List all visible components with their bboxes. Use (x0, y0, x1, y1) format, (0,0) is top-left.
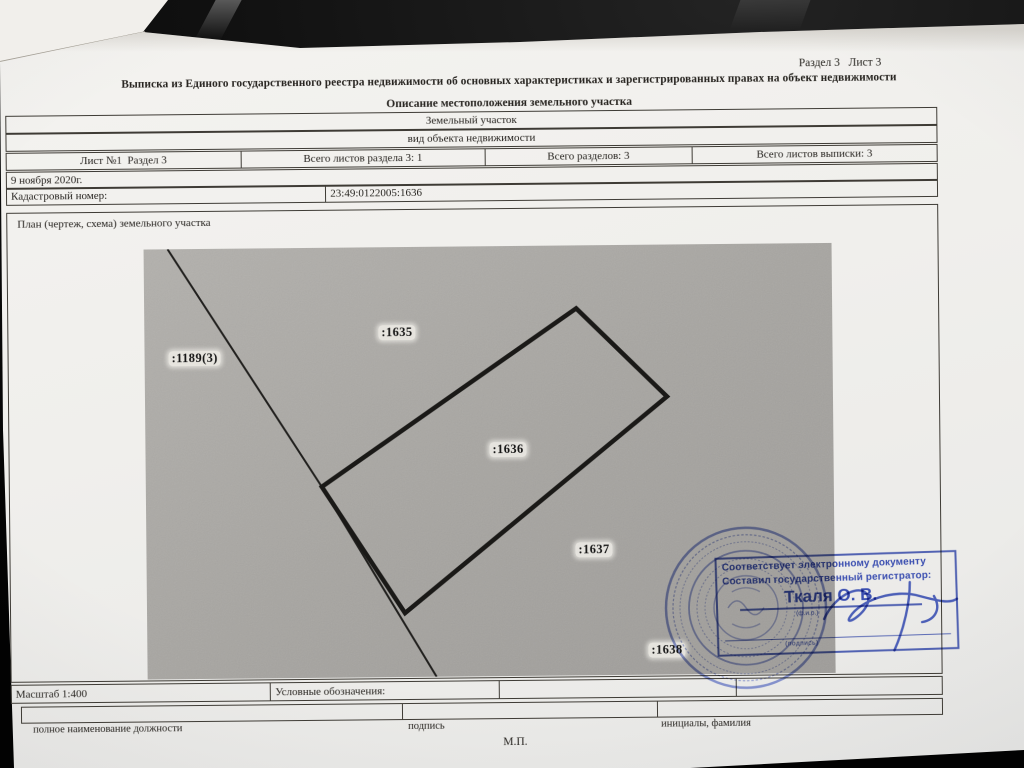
legend-label: Условные обозначения: (271, 681, 500, 700)
scale-label: Масштаб 1:400 (12, 683, 272, 702)
parcel-label: :1189(3) (169, 351, 221, 367)
plan-title: План (чертеж, схема) земельного участка (17, 217, 210, 231)
object-type-value: Земельный участок (426, 114, 517, 127)
object-type-caption: вид объекта недвижимости (408, 131, 536, 144)
cadastral-label: Кадастровый номер: (7, 186, 326, 204)
signature-caption: подпись (408, 721, 445, 732)
sheet-number-cell: Лист №1 Раздел 3 (7, 152, 242, 170)
document-content: Раздел 3 Лист 3 Выписка из Единого госуд… (0, 0, 1024, 768)
position-fill-cell (22, 704, 403, 723)
seal-place-mark: М.П. (503, 736, 527, 748)
section-sheet-label: Раздел 3 Лист 3 (799, 56, 882, 69)
signature-fill-cell (403, 702, 658, 719)
name-caption: инициалы, фамилия (661, 718, 751, 730)
parcel-label: :1636 (489, 442, 526, 457)
parcel-label: :1635 (378, 325, 415, 340)
total-sheets-cell: Всего листов выписки: 3 (692, 145, 937, 163)
handwritten-signature (814, 576, 965, 657)
section-sheets-cell: Всего листов раздела 3: 1 (241, 149, 486, 167)
name-fill-cell (658, 699, 943, 717)
document-title: Выписка из Единого государственного реес… (37, 70, 981, 91)
cadastral-number: 23:49:0122005:1636 (326, 180, 937, 201)
position-caption: полное наименование должности (33, 723, 182, 735)
total-sections-cell: Всего разделов: 3 (486, 147, 693, 165)
photo-of-document: Раздел 3 Лист 3 Выписка из Единого госуд… (0, 0, 1024, 768)
parcel-label: :1637 (575, 542, 612, 557)
